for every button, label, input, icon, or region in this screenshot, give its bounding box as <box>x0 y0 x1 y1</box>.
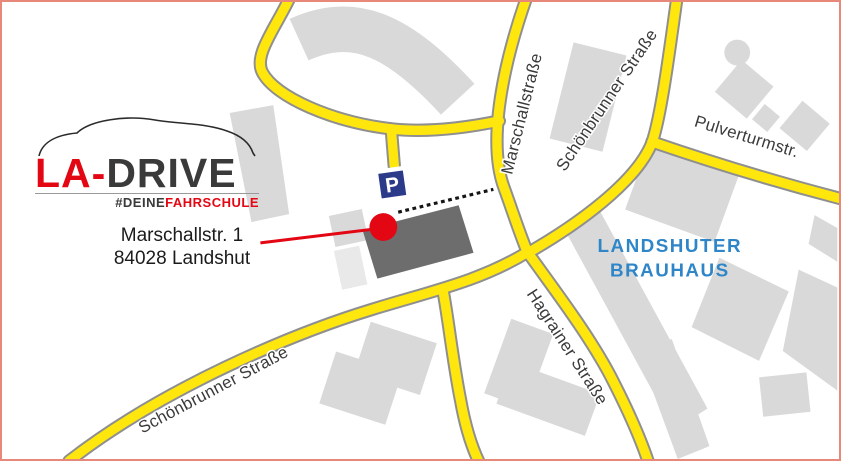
logo-wordmark-dark: DRIVE <box>106 150 236 196</box>
logo-wordmark: LA-DRIVE <box>35 158 259 189</box>
road-branch-south-fill <box>443 289 479 459</box>
logo-wordmark-red: LA- <box>35 150 106 196</box>
map-frame: Marschallstraße Schönbrunner Straße Pulv… <box>0 0 841 461</box>
road-parking-stub-fill <box>391 129 394 166</box>
brauhaus-label-line2: BRAUHAUS <box>610 260 730 281</box>
building <box>334 246 367 290</box>
location-marker-dot <box>369 213 397 241</box>
building <box>329 209 369 247</box>
building <box>752 104 780 132</box>
logo-tagline-dark: #DEINE <box>115 195 165 210</box>
building <box>299 29 458 99</box>
address-line1: Marschallstr. 1 <box>98 224 266 247</box>
street-label-schoenbrunner-lower: Schönbrunner Straße <box>135 342 291 437</box>
logo-tagline-red: FAHRSCHULE <box>165 195 259 210</box>
building <box>759 372 810 416</box>
brauhaus-label-line1: LANDSHUTER <box>598 235 743 256</box>
logo: LA-DRIVE #DEINEFAHRSCHULE <box>35 112 259 210</box>
building <box>783 270 838 391</box>
building <box>809 215 838 262</box>
building <box>724 40 750 66</box>
logo-tagline: #DEINEFAHRSCHULE <box>35 195 259 210</box>
address-line2: 84028 Landshut <box>98 247 266 270</box>
address-block: Marschallstr. 1 84028 Landshut <box>98 224 266 270</box>
parking-icon: P <box>373 165 411 203</box>
